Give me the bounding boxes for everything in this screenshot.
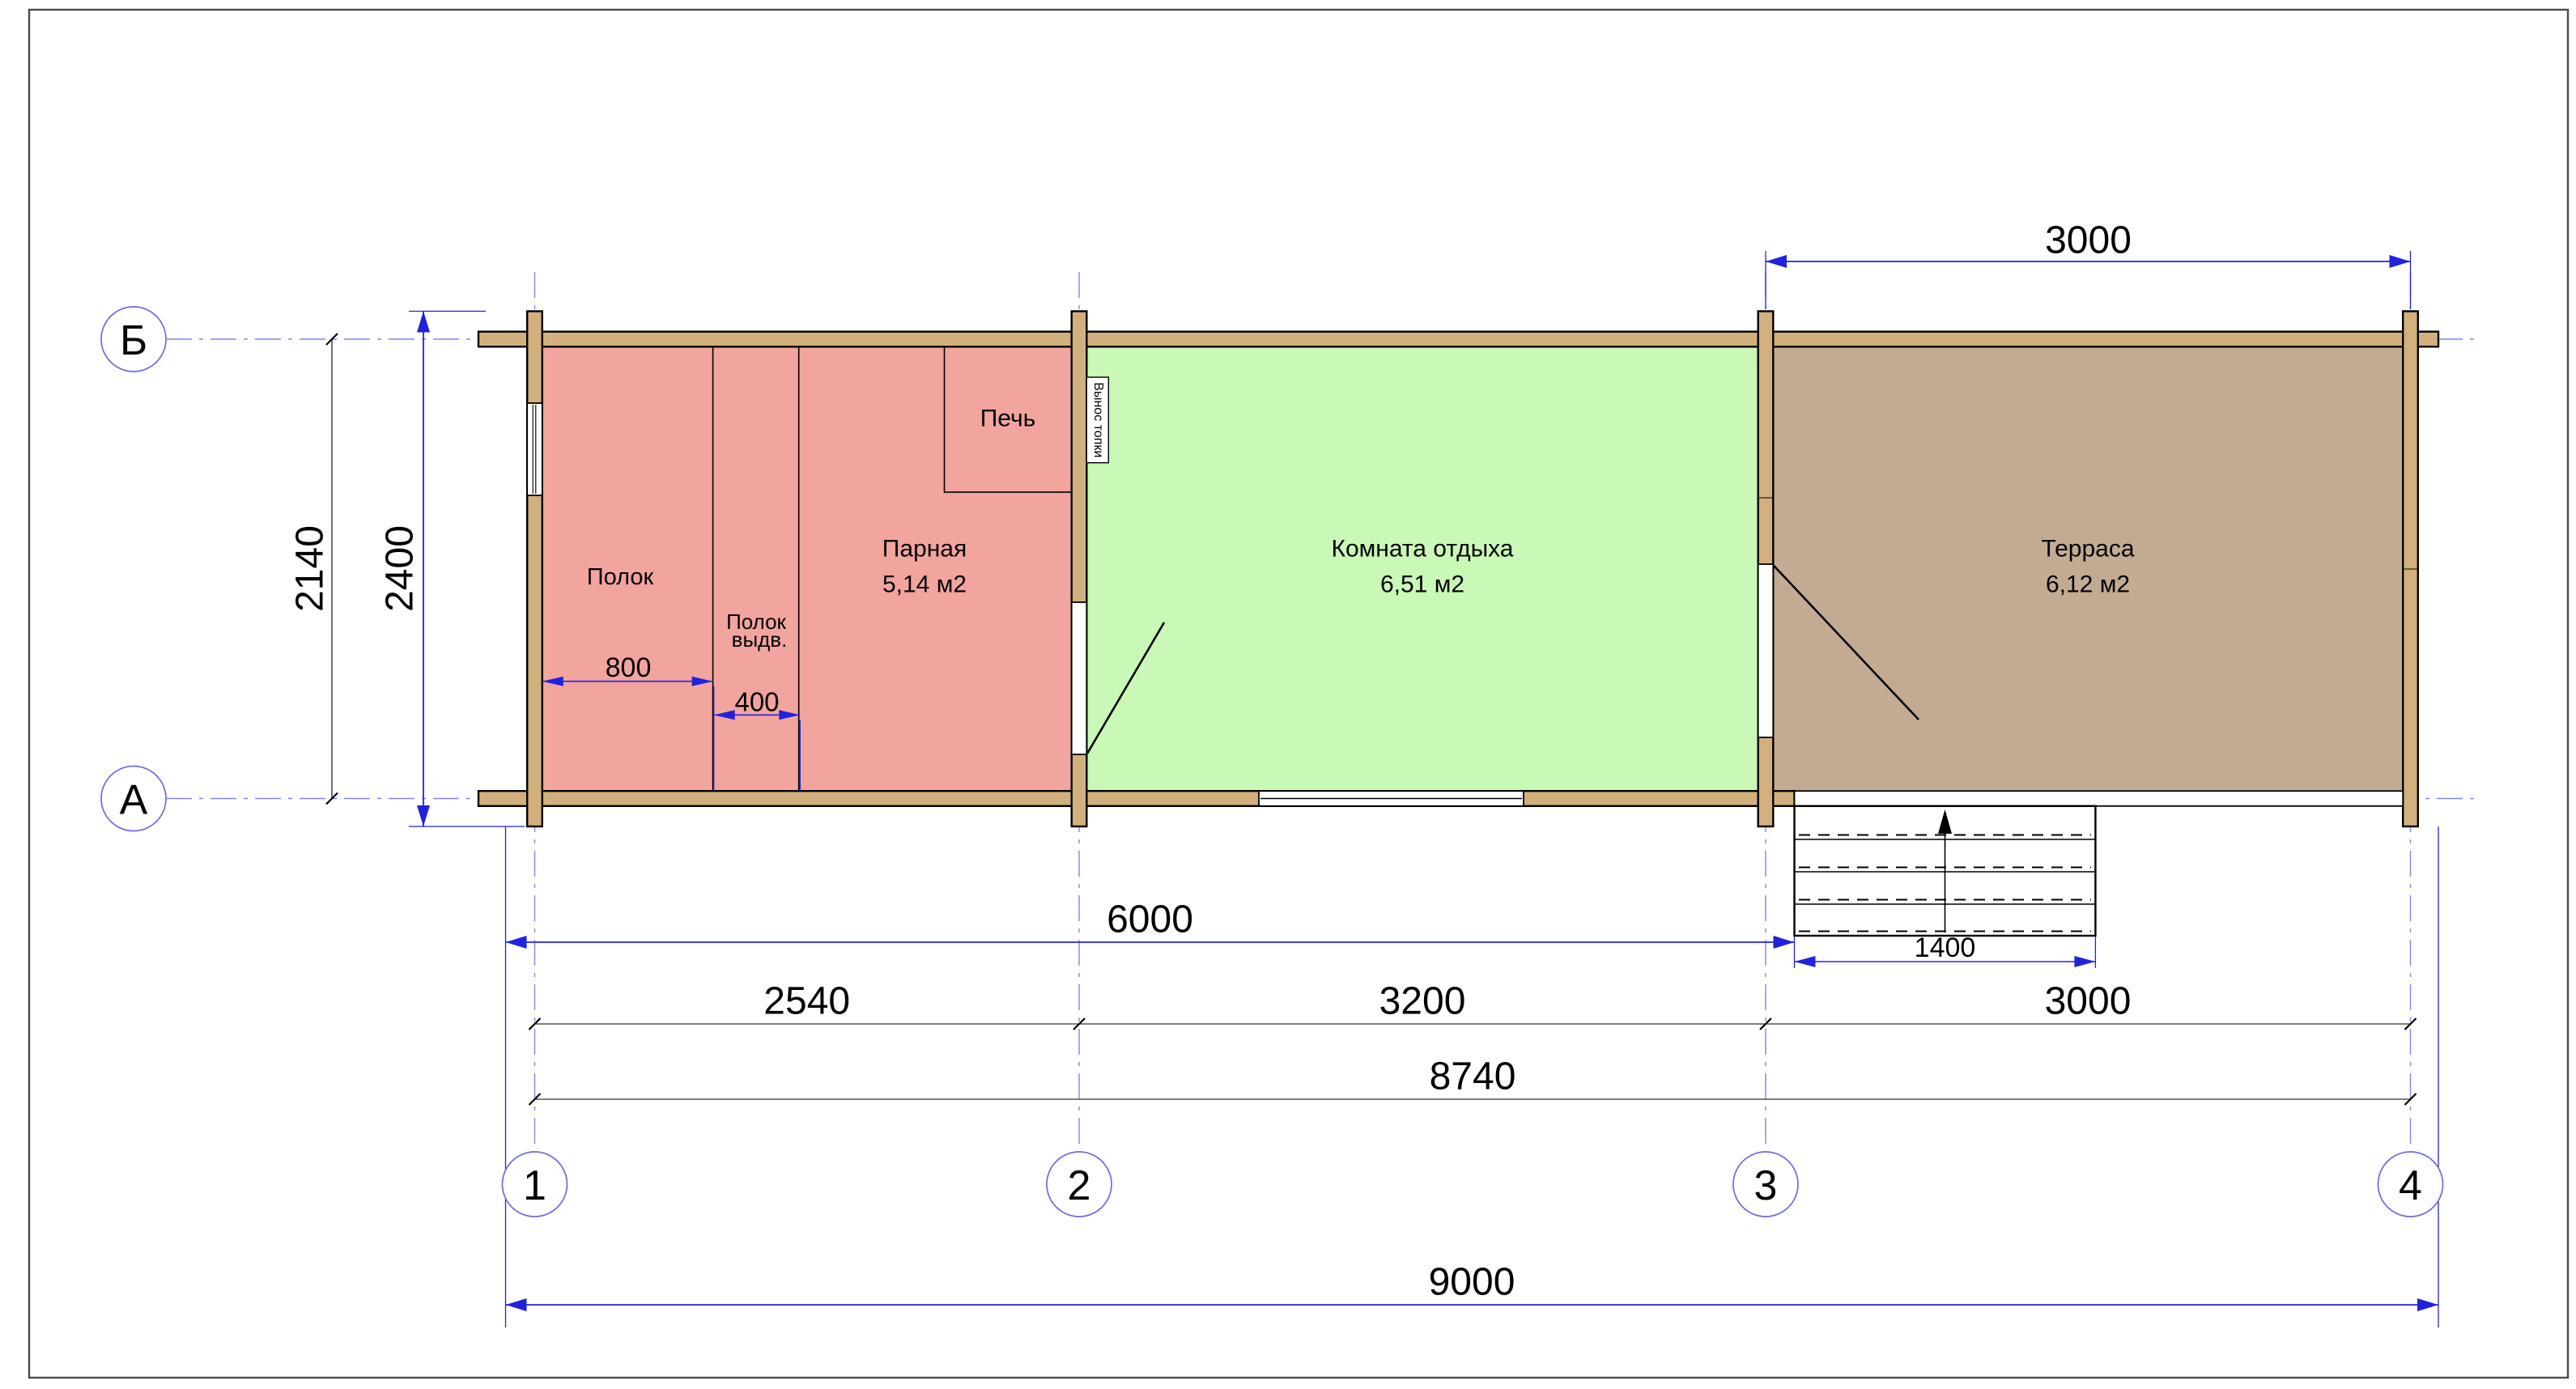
axis-label-3: 3 <box>1754 1162 1778 1209</box>
floor-plan-canvas: Парная 5,14 м2 Комната отдыха 6,51 м2 Те… <box>0 0 2576 1389</box>
dim-text-shelf: 800 <box>606 652 652 683</box>
arrow-icon <box>1795 956 1816 967</box>
rest-room-area <box>1086 346 1758 791</box>
arrow-icon <box>417 805 430 826</box>
axis-label-2: 2 <box>1068 1162 1091 1209</box>
wall-top <box>478 332 2438 347</box>
drawing-sheet: Парная 5,14 м2 Комната отдыха 6,51 м2 Те… <box>0 0 2576 1389</box>
dim-text-span-3-4: 3000 <box>2045 980 2132 1023</box>
arrow-icon <box>2417 1298 2438 1311</box>
arrow-icon <box>2074 956 2095 967</box>
arrow-icon <box>506 1298 527 1311</box>
arrow-icon <box>1774 936 1795 949</box>
dim-text-terrace-top: 3000 <box>2045 219 2132 262</box>
steam-room-area-label: 5,14 м2 <box>882 571 967 598</box>
arrow-icon <box>2390 255 2411 268</box>
wall-axis1-left <box>527 312 542 827</box>
dim-text-axes-height: 2140 <box>289 525 332 612</box>
dim-text-span-2-3: 3200 <box>1379 980 1466 1023</box>
terrace-area-label: 6,12 м2 <box>2046 571 2130 598</box>
window-left-wall <box>527 403 542 495</box>
shelf-pullout-label-2: выдв. <box>732 627 788 652</box>
terrace-area <box>1773 346 2403 791</box>
axis-label-1: 1 <box>523 1162 546 1209</box>
stove-label: Печь <box>980 406 1036 432</box>
door-opening-steam-room <box>1072 602 1087 754</box>
axis-label-4: 4 <box>2399 1162 2422 1209</box>
rest-room-area-label: 6,51 м2 <box>1380 571 1464 598</box>
axis-label-B: Б <box>120 317 147 364</box>
shelf-label: Полок <box>587 564 654 590</box>
arrow-icon <box>506 936 527 949</box>
deck-edge-board <box>1795 791 2404 806</box>
dim-text-overall-length: 9000 <box>1429 1261 1515 1304</box>
dim-text-main-block: 6000 <box>1107 898 1193 941</box>
dim-text-overall-height: 2400 <box>379 525 422 612</box>
stairs <box>1795 806 2096 936</box>
axis-label-A: А <box>120 777 148 824</box>
furnace-extension-label: Вынос топки <box>1091 382 1105 457</box>
dim-text-axes-length: 8740 <box>1430 1056 1516 1098</box>
steam-room-name: Парная <box>882 536 967 563</box>
arrow-icon <box>1766 255 1787 268</box>
door-opening-terrace <box>1758 564 1774 737</box>
wall-bottom <box>478 791 1795 806</box>
rest-room-name: Комната отдыха <box>1332 536 1514 563</box>
dim-text-shelf-pullout: 400 <box>734 687 779 717</box>
dim-text-stairs: 1400 <box>1915 932 1976 963</box>
terrace-name: Терраса <box>2041 536 2134 563</box>
dim-text-span-1-2: 2540 <box>763 980 850 1023</box>
arrow-icon <box>417 312 430 333</box>
